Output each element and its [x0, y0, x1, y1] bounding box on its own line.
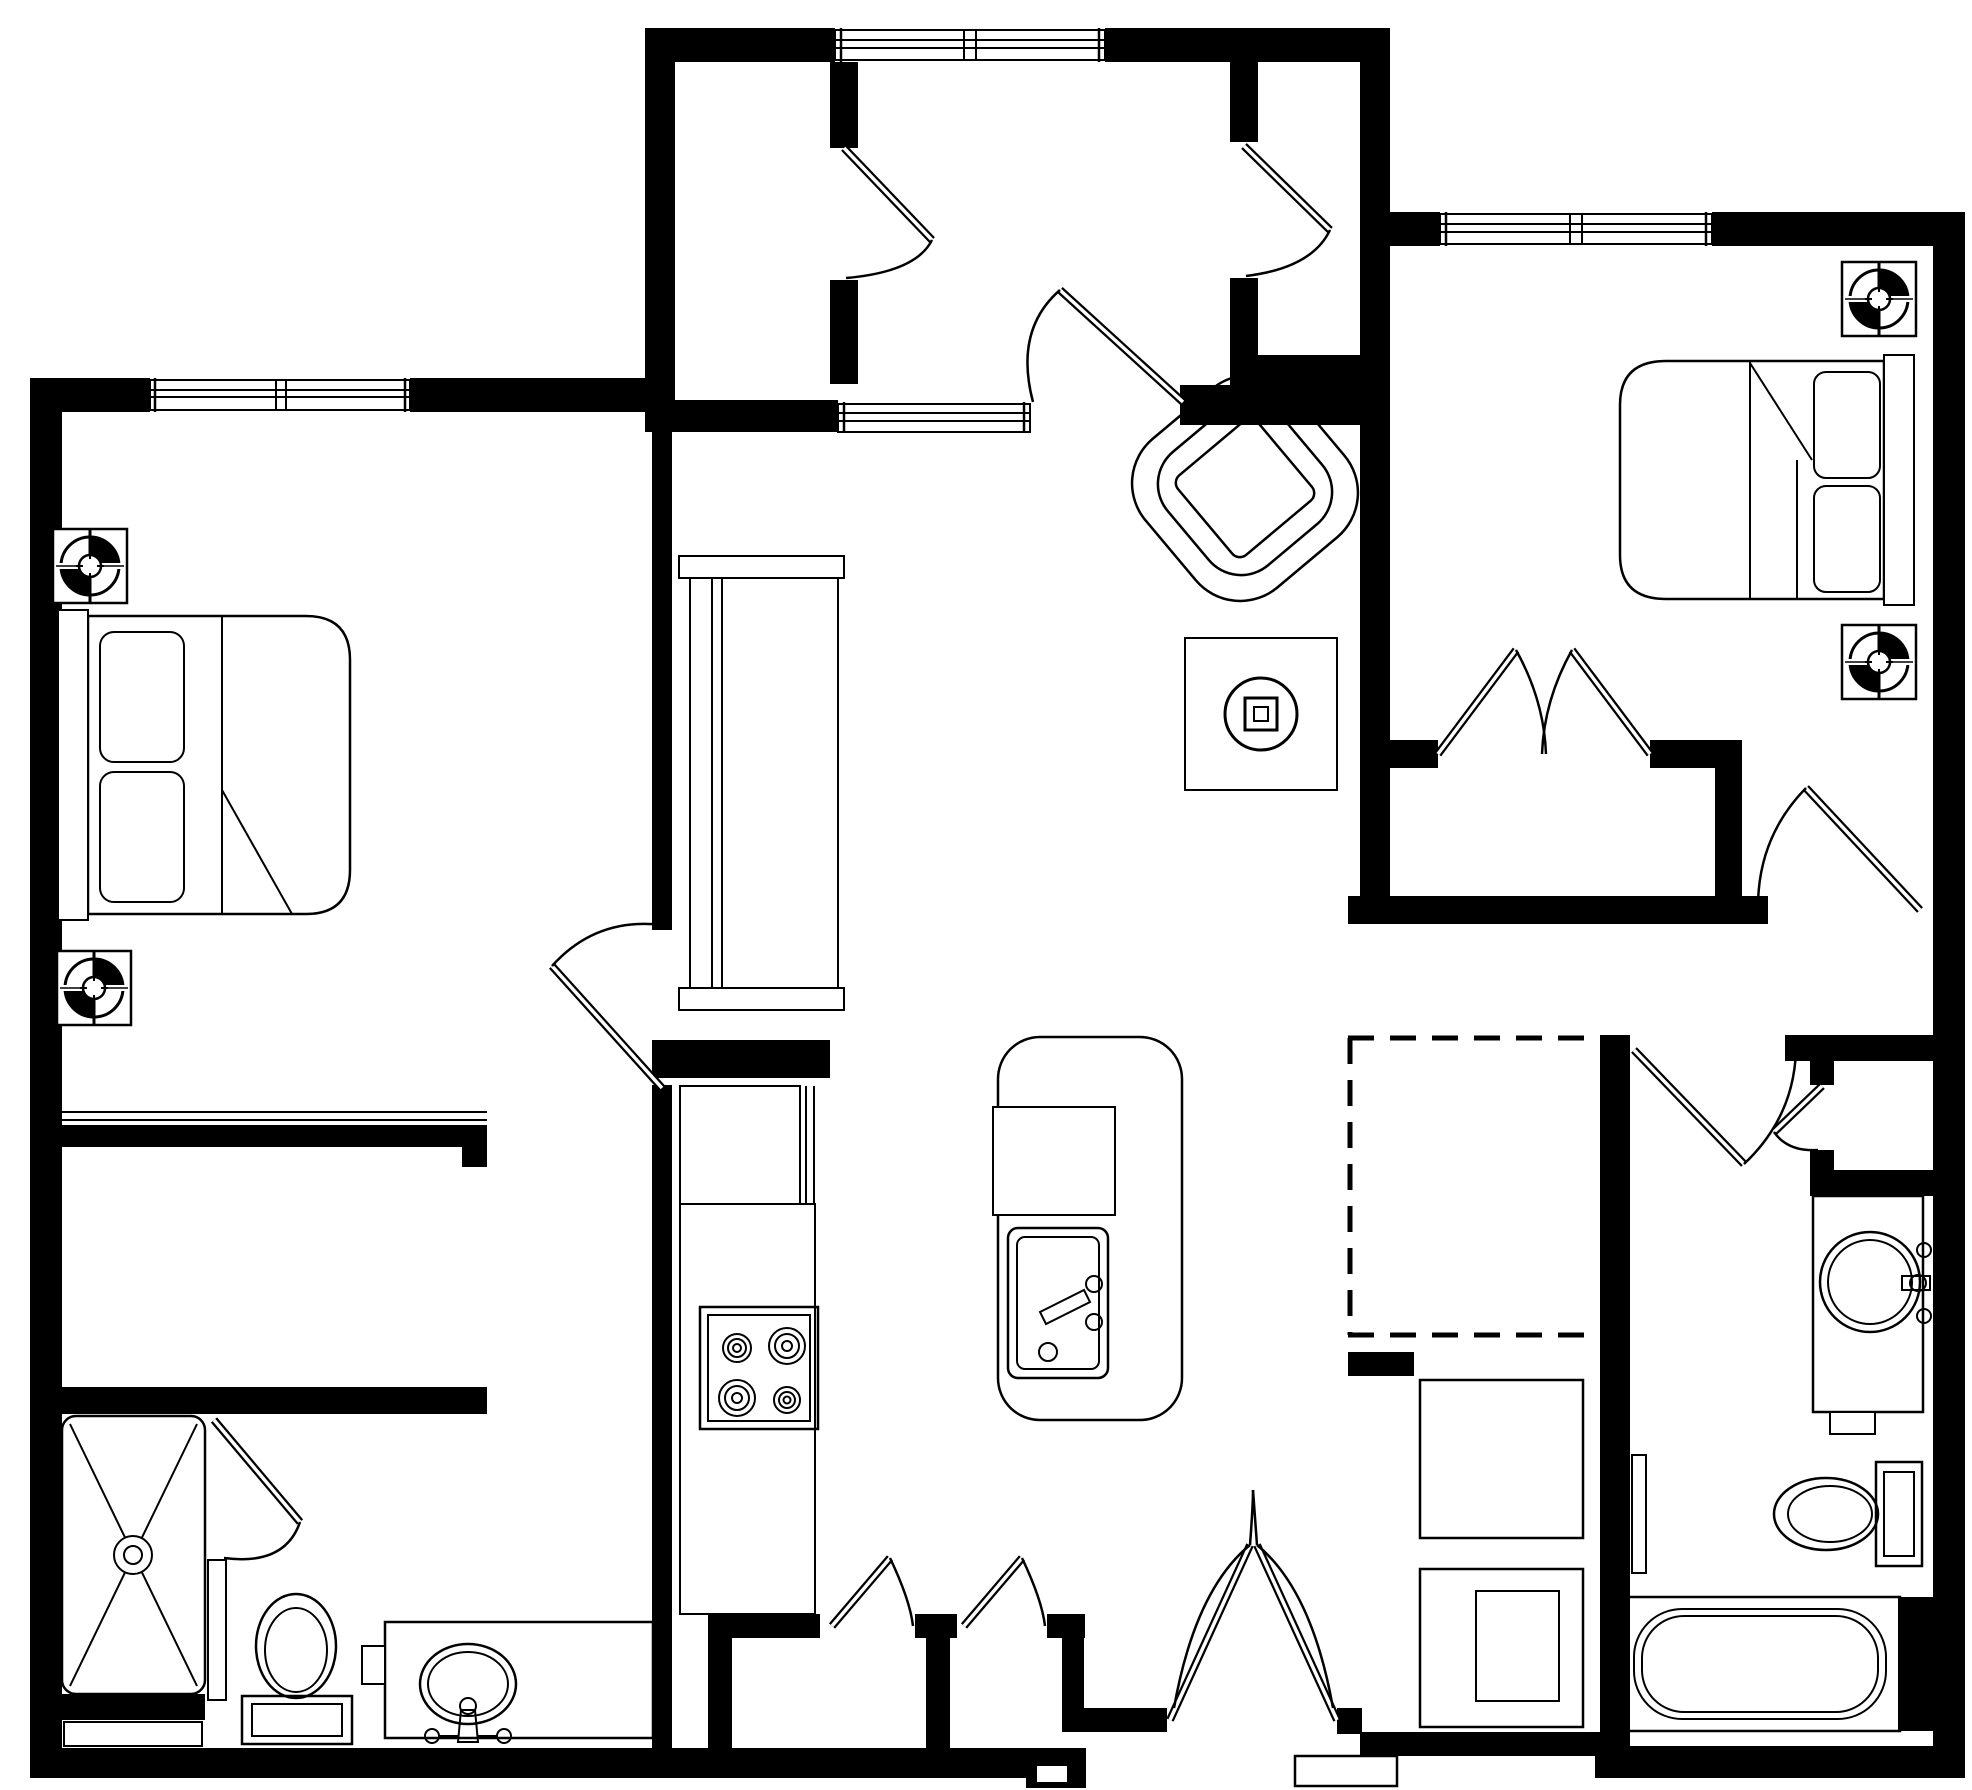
wall-segment [1360, 1732, 1602, 1756]
media-shelf [679, 556, 844, 1010]
refrigerator [680, 1086, 800, 1204]
wall-segment [1360, 28, 1390, 922]
wall-segment [1600, 1035, 1630, 1750]
wall-segment [30, 378, 150, 412]
wall-segment [652, 1040, 830, 1078]
wall-segment [1105, 28, 1390, 62]
window-bedroom-2 [1440, 212, 1712, 246]
wall-segment [1833, 1170, 1933, 1196]
soap-box [362, 1646, 385, 1684]
ceiling-fan-icon [1842, 624, 1916, 700]
wall-segment [1390, 212, 1440, 246]
wall-segment [1712, 212, 1965, 246]
wall-segment [1785, 1035, 1933, 1061]
wall-segment [1715, 740, 1742, 900]
pillow [100, 632, 184, 762]
ceiling-fan-icon [57, 950, 131, 1026]
half-wall-divider [208, 1560, 226, 1700]
wall-segment [915, 1614, 957, 1638]
pillow [1814, 486, 1880, 592]
wall-segment [926, 1638, 950, 1750]
wall-segment [1230, 62, 1258, 142]
wall-step-notch [1037, 1766, 1067, 1782]
wall-segment [1595, 1746, 1965, 1778]
lamp-icon [1225, 678, 1297, 750]
wall-segment [57, 1125, 487, 1147]
ceiling-fan-icon [53, 528, 127, 604]
wall-segment [1810, 1035, 1834, 1085]
wall-segment [1348, 896, 1768, 924]
pillow [100, 772, 184, 902]
floor-plan-page [0, 0, 1972, 1790]
wall-segment [830, 62, 858, 148]
wall-segment [30, 1748, 1086, 1778]
wall-segment [410, 378, 660, 412]
wall-segment [645, 400, 838, 432]
ceiling-fan-icon [1842, 261, 1916, 337]
wall-segment [1337, 1708, 1362, 1734]
wall-segment [652, 412, 672, 930]
wall-segment [645, 28, 835, 62]
window-entry-hall [835, 28, 1105, 62]
wall-segment [462, 1125, 487, 1167]
wall-segment [1390, 740, 1438, 768]
wall-segment [645, 28, 675, 432]
wall-segment [830, 280, 858, 384]
shower-drain [114, 1536, 152, 1574]
wall-segment [1047, 1614, 1085, 1638]
towel-bar [1632, 1455, 1646, 1573]
wall-segment [708, 1614, 732, 1750]
wall-segment [1062, 1708, 1167, 1732]
floor-plan-drawing [0, 0, 1972, 1790]
pass-through-window [838, 402, 1030, 432]
wall-niche [64, 1722, 202, 1746]
headboard [58, 610, 88, 920]
wall-segment [1810, 1150, 1834, 1196]
wall-segment [1898, 1597, 1933, 1731]
end-table [1185, 638, 1337, 790]
pillow [1814, 372, 1880, 478]
wall-segment [652, 1085, 672, 1748]
wall-segment [1230, 355, 1360, 385]
vanity-step [1830, 1412, 1875, 1434]
wall-segment [57, 1387, 487, 1414]
window-bedroom-1 [150, 378, 410, 412]
headboard [1884, 355, 1914, 605]
wall-segment [1348, 1352, 1414, 1376]
wall-segment [1933, 212, 1965, 1778]
wall-segment [1062, 1638, 1084, 1714]
wall-segment [1230, 278, 1258, 358]
wall-segment [57, 1694, 205, 1720]
island-inset [993, 1107, 1115, 1215]
